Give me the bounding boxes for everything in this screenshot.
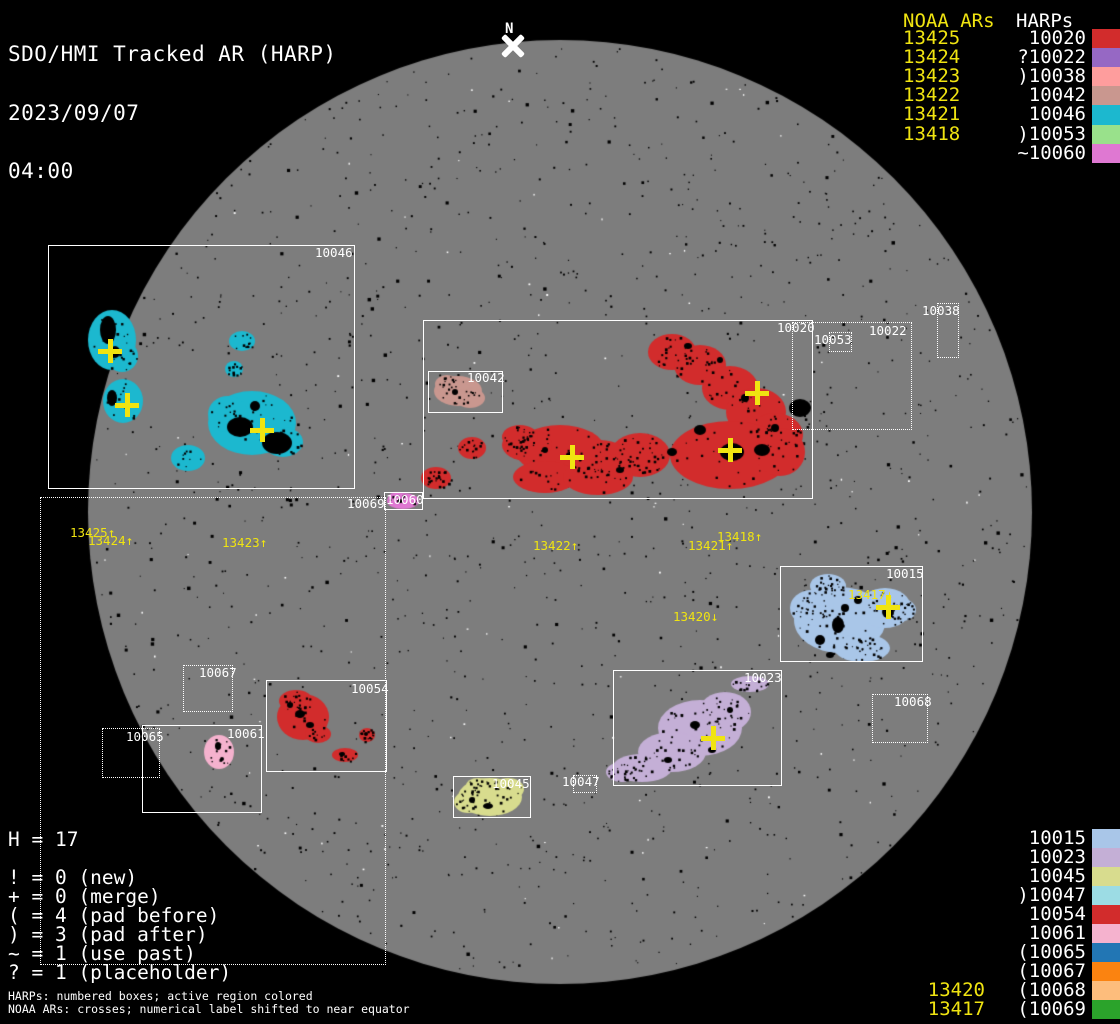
harp-color-swatch xyxy=(1092,886,1120,905)
harp-box-label-10068: 10068 xyxy=(894,695,932,708)
noaa-cross-3 xyxy=(560,445,584,469)
noaa-disk-label-13423: 13423↑ xyxy=(222,536,267,549)
harp-box-10023 xyxy=(613,670,782,786)
harp-color-swatch xyxy=(1092,105,1120,124)
noaa-disk-label-13422: 13422↑ xyxy=(533,539,578,552)
noaa-cross-6 xyxy=(876,595,900,619)
harp-box-label-10022: 10022 xyxy=(869,324,907,337)
harp-number: (10069 xyxy=(903,1000,1086,1019)
harp-color-swatch xyxy=(1092,848,1120,867)
noaa-disk-label-13424: 13424↑ xyxy=(88,534,133,547)
noaa-cross-1 xyxy=(115,393,139,417)
north-pole-x-icon xyxy=(501,34,525,58)
harp-color-swatch xyxy=(1092,1000,1120,1019)
noaa-cross-7 xyxy=(701,726,725,750)
harp-number: ~10060 xyxy=(903,144,1086,163)
harp-color-swatch xyxy=(1092,943,1120,962)
legend-row-10061: 10061 xyxy=(903,924,1120,943)
legend-noaa-harps: NOAA ARs HARPs 134251002013424?100221342… xyxy=(903,10,1120,29)
noaa-cross-2 xyxy=(250,418,274,442)
noaa-cross-4 xyxy=(718,438,742,462)
footnotes: HARPs: numbered boxes; active region col… xyxy=(8,990,410,1015)
harp-box-10022 xyxy=(792,322,912,430)
legend-row-10053: 13418)10053 xyxy=(903,125,1120,144)
legend-row-10060: ~10060 xyxy=(903,144,1120,163)
harp-box-label-10038: 10038 xyxy=(922,304,960,317)
legend-row-10015: 10015 xyxy=(903,829,1120,848)
harp-number: )10053 xyxy=(903,125,1086,144)
harp-box-label-10047: 10047 xyxy=(562,775,600,788)
harp-color-swatch xyxy=(1092,48,1120,67)
harp-color-swatch xyxy=(1092,981,1120,1000)
harp-count: H = 17 xyxy=(8,828,78,851)
harp-color-swatch xyxy=(1092,924,1120,943)
noaa-disk-label-13418: 13418↑ xyxy=(717,530,762,543)
harp-box-label-10042: 10042 xyxy=(467,371,505,384)
harp-tracking-view: 1004610020100421006010015100231005410061… xyxy=(0,0,1120,1024)
harp-box-label-10053: 10053 xyxy=(814,333,852,346)
noaa-disk-label-13420: 13420↓ xyxy=(673,610,718,623)
legend-row-10065: (10065 xyxy=(903,943,1120,962)
harp-color-swatch xyxy=(1092,144,1120,163)
legend-row-10054: 10054 xyxy=(903,905,1120,924)
legend-row-10047: )10047 xyxy=(903,886,1120,905)
harp-color-swatch xyxy=(1092,962,1120,981)
footnote-1: NOAA ARs: crosses; numerical label shift… xyxy=(8,1003,410,1016)
time-label: 04:00 xyxy=(8,162,337,182)
legend-row-10023: 10023 xyxy=(903,848,1120,867)
harp-color-swatch xyxy=(1092,29,1120,48)
harp-box-label-10045: 10045 xyxy=(492,777,530,790)
harp-color-swatch xyxy=(1092,867,1120,886)
harp-box-label-10015: 10015 xyxy=(886,567,924,580)
harp-color-swatch xyxy=(1092,829,1120,848)
noaa-cross-5 xyxy=(745,381,769,405)
harp-color-swatch xyxy=(1092,67,1120,86)
header: SDO/HMI Tracked AR (HARP) 2023/09/07 04:… xyxy=(8,6,337,221)
harp-box-label-10046: 10046 xyxy=(315,246,353,259)
harp-box-label-10069: 10069 xyxy=(347,497,385,510)
footnote-0: HARPs: numbered boxes; active region col… xyxy=(8,990,410,1003)
stat-line-5: ? = 1 (placeholder) xyxy=(8,961,231,984)
harp-color-swatch xyxy=(1092,86,1120,105)
harp-box-label-10060: 10060 xyxy=(386,493,424,506)
harp-color-swatch xyxy=(1092,905,1120,924)
harp-number: 10046 xyxy=(903,105,1086,124)
legend-row-10046: 1342110046 xyxy=(903,105,1120,124)
harp-box-label-10023: 10023 xyxy=(744,671,782,684)
page-title: SDO/HMI Tracked AR (HARP) xyxy=(8,45,337,65)
harp-box-10046 xyxy=(48,245,355,489)
date-label: 2023/09/07 xyxy=(8,104,337,124)
harp-color-swatch xyxy=(1092,125,1120,144)
legend-row-10069: 13417(10069 xyxy=(903,1000,1120,1019)
noaa-cross-0 xyxy=(98,339,122,363)
legend-row-10045: 10045 xyxy=(903,867,1120,886)
